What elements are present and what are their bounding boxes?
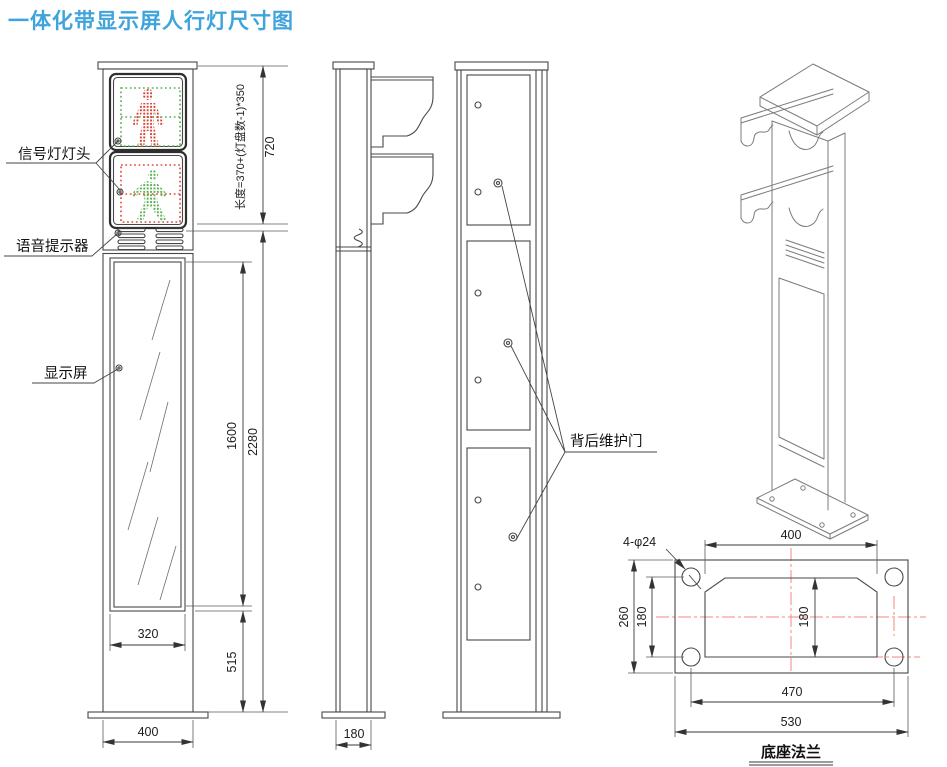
dim-length-formula: 长度=370+(灯盘数-1)*350 <box>233 84 247 210</box>
side-dimensions: 180 <box>336 720 371 750</box>
signal-panel-green <box>110 152 186 228</box>
drawing-svg: 信号灯灯头 语音提示器 显示屏 长度=370+(灯盘数- <box>0 0 947 767</box>
back-labels: 背后维护门 <box>502 186 657 540</box>
dim-inner-400: 400 <box>781 528 802 542</box>
glass-reflections <box>128 280 176 600</box>
flange-dimensions: 4-φ24 400 260 180 180 470 <box>617 528 908 737</box>
side-visor-top <box>371 77 433 147</box>
iso-speaker-vents <box>786 240 824 268</box>
side-cap <box>333 62 374 69</box>
dim-400: 400 <box>138 725 159 739</box>
maintenance-door-top <box>467 75 530 225</box>
maintenance-door-bottom <box>467 448 530 640</box>
maintenance-door-middle <box>467 241 530 430</box>
speaker-vents <box>115 228 183 250</box>
iso-visor-bottom <box>741 166 833 226</box>
dim-bolt-holes: 4-φ24 <box>623 535 656 549</box>
dim-720: 720 <box>263 137 277 158</box>
display-screen <box>110 258 185 611</box>
side-view: 180 <box>322 62 433 750</box>
dim-180-holes-v: 180 <box>635 607 649 628</box>
back-base-plate <box>443 712 560 718</box>
iso-display-panel <box>779 278 824 467</box>
dim-470: 470 <box>782 685 803 699</box>
iso-base-flange <box>757 479 868 539</box>
dim-320: 320 <box>138 627 159 641</box>
isometric-view <box>741 64 869 539</box>
door-lock-icon <box>494 179 502 187</box>
dim-530: 530 <box>781 715 802 729</box>
dimension-drawing-page: 一体化带显示屏人行灯尺寸图 <box>0 0 947 767</box>
label-rear-door: 背后维护门 <box>570 433 643 450</box>
side-base-plate <box>322 712 385 718</box>
side-visor-bottom <box>371 154 433 224</box>
front-base-plate <box>88 712 208 718</box>
dim-2280: 2280 <box>246 428 260 456</box>
label-display: 显示屏 <box>44 366 88 382</box>
flange-caption: 底座法兰 <box>749 743 833 765</box>
dim-1600: 1600 <box>225 422 239 450</box>
flange-detail: 4-φ24 400 260 180 180 470 <box>617 528 926 765</box>
back-cap <box>455 62 548 70</box>
dim-515: 515 <box>225 652 239 673</box>
label-signal-head: 信号灯灯头 <box>18 146 91 163</box>
dim-260: 260 <box>617 607 631 628</box>
dim-180-inner: 180 <box>797 607 811 628</box>
side-squiggle-detail <box>354 229 362 247</box>
door-lock-icon <box>504 339 512 347</box>
flange-caption-text: 底座法兰 <box>761 743 821 761</box>
label-voice: 语音提示器 <box>16 238 89 255</box>
front-cap <box>98 62 197 69</box>
dim-180-depth: 180 <box>344 727 365 741</box>
signal-panel-red <box>110 74 186 150</box>
front-view: 信号灯灯头 语音提示器 显示屏 长度=370+(灯盘数- <box>4 62 288 748</box>
